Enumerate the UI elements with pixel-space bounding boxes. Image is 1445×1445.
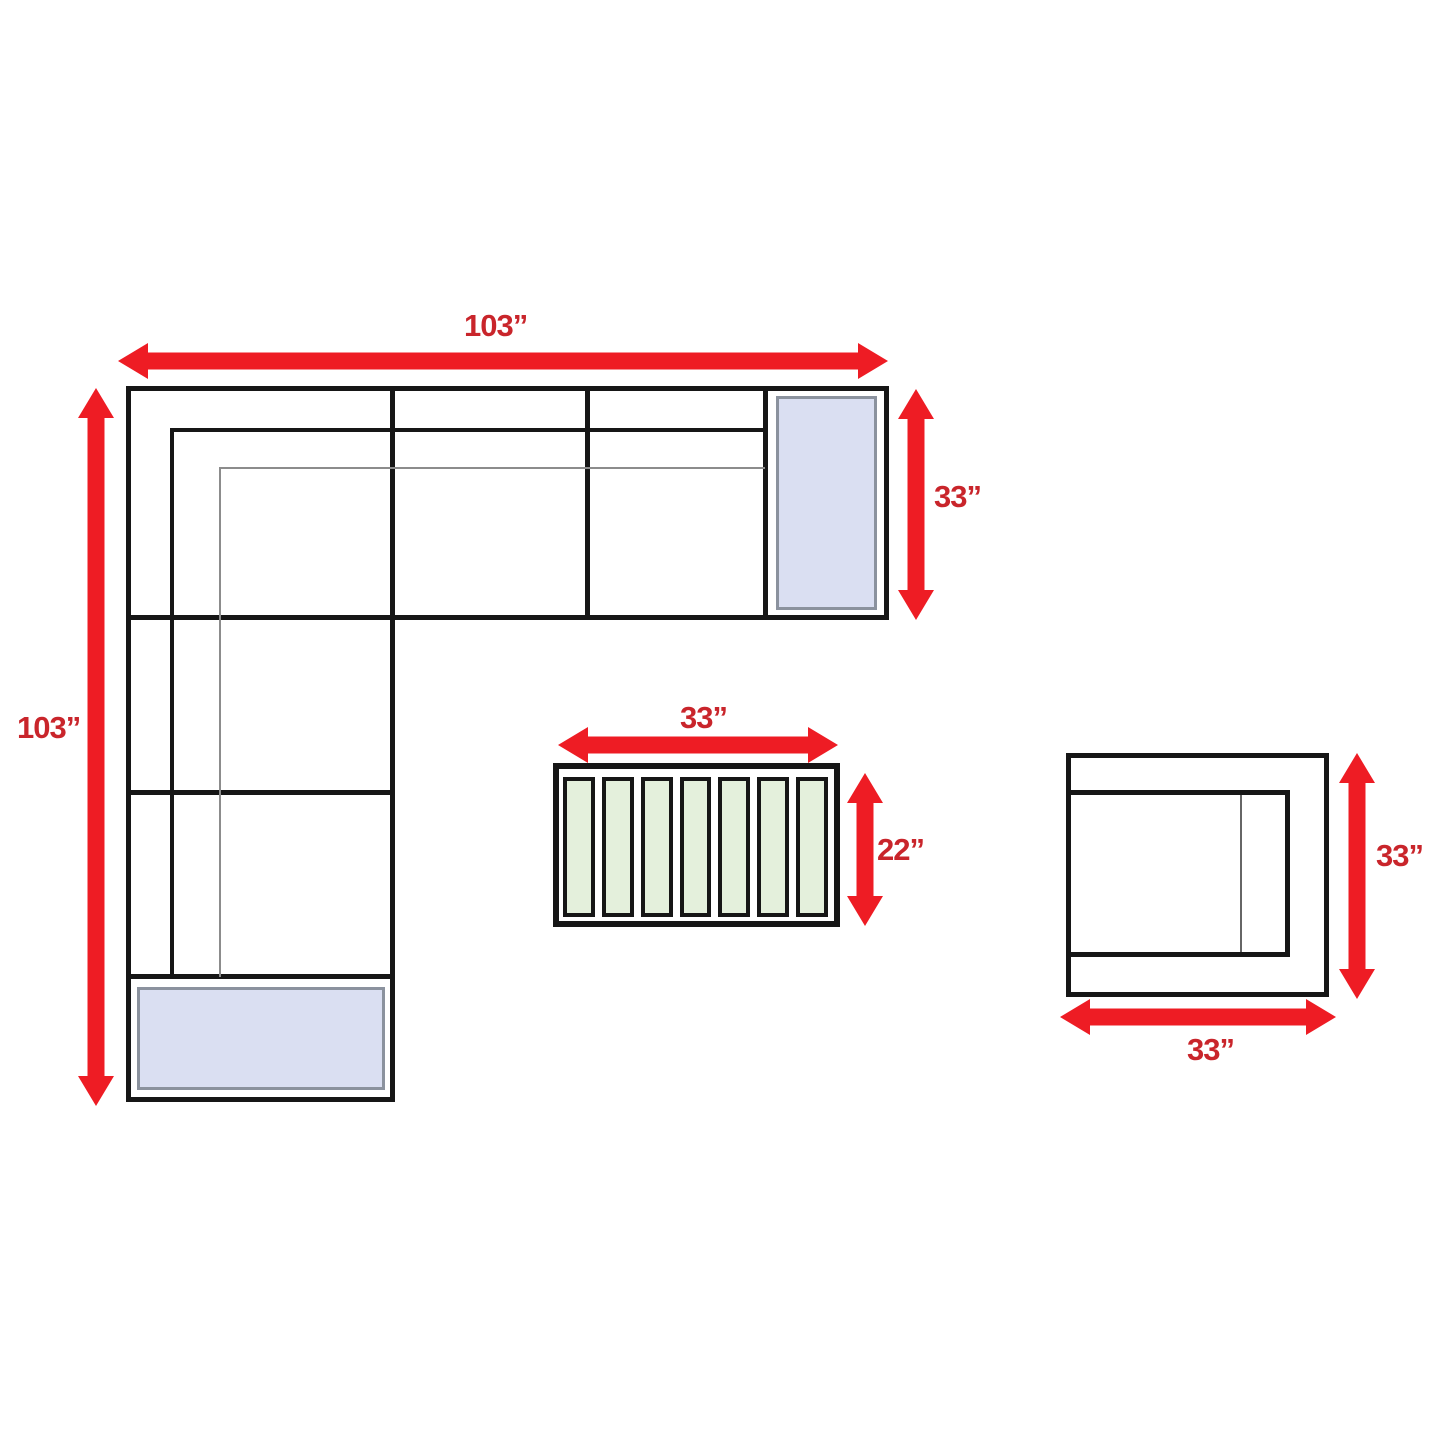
- sofa-cushion-edge-line-horizontal: [219, 467, 765, 469]
- sofa-seat-divider-horizontal: [126, 790, 395, 795]
- chair-width-label: 33”: [1187, 1034, 1234, 1065]
- sofa-height-arrow: [78, 388, 114, 1106]
- arrow-head-bottom: [1339, 969, 1375, 999]
- coffee-table-slat: [796, 777, 828, 917]
- coffee-table-slat: [757, 777, 789, 917]
- arrow-head-top: [898, 389, 934, 419]
- coffee-table-slat: [563, 777, 595, 917]
- arrow-shaft: [908, 415, 925, 594]
- arrow-shaft: [1086, 1009, 1310, 1026]
- sofa-cushion-edge-line-vertical: [219, 467, 221, 977]
- arrow-shaft: [144, 353, 862, 370]
- arrow-shaft: [857, 799, 874, 900]
- arrow-shaft: [1349, 779, 1366, 973]
- chair-width-arrow: [1060, 999, 1336, 1035]
- coffee-table-slat: [718, 777, 750, 917]
- arrow-head-left: [118, 343, 148, 379]
- sofa-bottom-corner-cushion: [137, 987, 385, 1090]
- arrow-shaft: [584, 737, 812, 754]
- coffee-table-slats: [563, 777, 828, 917]
- sofa-backrest-inner-line: [170, 428, 765, 432]
- sofa-right-corner-cushion: [776, 396, 877, 610]
- sofa-depth-label: 33”: [934, 481, 981, 512]
- chair-depth-label: 33”: [1376, 840, 1423, 871]
- arrow-head-bottom: [78, 1076, 114, 1106]
- sofa-armrest-inner-line: [170, 428, 174, 977]
- arrow-head-bottom: [847, 896, 883, 926]
- coffee-table-slat: [680, 777, 712, 917]
- coffee-table-depth-label: 22”: [877, 834, 924, 865]
- arrow-shaft: [88, 414, 105, 1080]
- coffee-table-width-label: 33”: [680, 702, 727, 733]
- arrow-head-right: [858, 343, 888, 379]
- arrow-head-top: [78, 388, 114, 418]
- arrow-head-right: [808, 727, 838, 763]
- sofa-width-label: 103”: [464, 310, 527, 341]
- sofa-seat-divider-vertical: [585, 386, 590, 620]
- sofa-width-arrow: [118, 343, 888, 379]
- arrow-head-top: [847, 773, 883, 803]
- arrow-head-left: [558, 727, 588, 763]
- furniture-dimensions-diagram: 103” 103” 33” 33” 22” 33” 33: [0, 0, 1445, 1445]
- sofa-height-label: 103”: [17, 712, 80, 743]
- chair-depth-arrow: [1339, 753, 1375, 999]
- arrow-head-top: [1339, 753, 1375, 783]
- arrow-head-right: [1306, 999, 1336, 1035]
- coffee-table-slat: [641, 777, 673, 917]
- chair-cushion-edge-line: [1240, 795, 1242, 952]
- coffee-table-slat: [602, 777, 634, 917]
- sofa-right-section-divider: [763, 386, 768, 620]
- sofa-bottom-section-divider: [126, 974, 395, 979]
- coffee-table-outline: [553, 763, 840, 927]
- chair-seat-outline: [1066, 790, 1290, 957]
- sofa-depth-arrow: [898, 389, 934, 620]
- arrow-head-left: [1060, 999, 1090, 1035]
- arrow-head-bottom: [898, 590, 934, 620]
